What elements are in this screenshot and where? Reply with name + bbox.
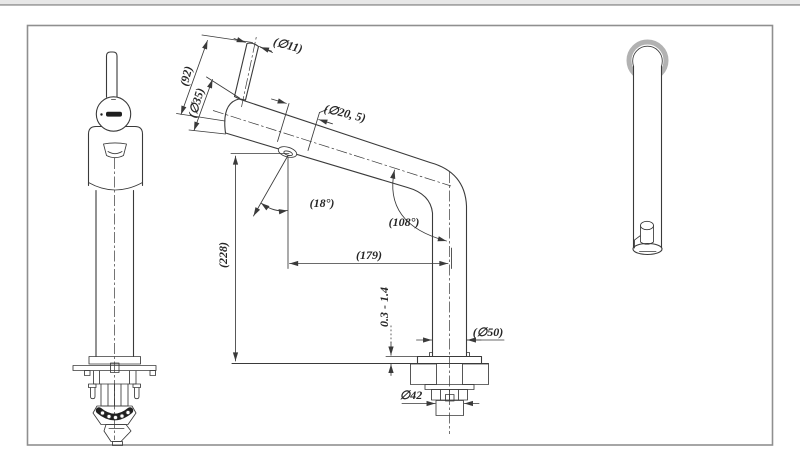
dim-18-arc [261, 203, 288, 211]
top-view-tube-fill [634, 61, 661, 249]
bracket-tab-left [85, 371, 91, 376]
front-hose-elbow [104, 425, 131, 442]
main-section-view [213, 36, 489, 434]
front-body-outline [89, 127, 143, 186]
dim-thread-diameter-label: ∅42 [400, 388, 422, 402]
front-body-bottom-arc [89, 183, 143, 191]
front-supply-body [101, 384, 128, 406]
top-view [629, 42, 666, 255]
counter-section-left [411, 364, 437, 385]
top-border-strip [0, 0, 800, 4]
dimension-annotations: (∅11) (92) (∅35) (∅20, 5) (18°) (108°) (… [177, 35, 505, 404]
dim-escutcheon-diameter-label: (∅50) [473, 325, 503, 339]
faucet-dimension-drawing: (∅11) (92) (∅35) (∅20, 5) (18°) (108°) (… [0, 0, 800, 451]
main-lever-rod [235, 43, 259, 100]
dim-deck-thickness-label: 0.3 - 1.4 [377, 287, 391, 327]
front-view [73, 52, 156, 446]
dim-bend-angle-label: (108°) [389, 215, 420, 229]
dim-spout-diameter-label: (∅20, 5) [323, 101, 368, 125]
front-outlet-recess [104, 143, 127, 158]
top-view-lever-cap [641, 221, 654, 229]
dim-205-arrow-right [319, 120, 333, 124]
main-centerlines [213, 36, 451, 434]
dim-height-label: (228) [216, 242, 230, 268]
dim-205-arrow-left [272, 99, 287, 103]
technical-drawing-page: (∅11) (92) (∅35) (∅20, 5) (18°) (108°) (… [0, 0, 800, 451]
knob-logo [106, 112, 122, 117]
dim-lever-leader [260, 47, 273, 53]
dim-lever-length-label: (92) [177, 65, 195, 88]
front-lever-rod [107, 52, 118, 97]
top-border-strip-edge [0, 4, 800, 6]
bracket-tab-right [150, 371, 156, 376]
knob-logo-dot [100, 113, 102, 115]
main-spout-outline [225, 99, 467, 357]
dim-reach-label: (179) [356, 248, 382, 262]
dim-18-axis-line [254, 156, 289, 217]
base-bolt-right [133, 384, 141, 399]
dim-lever-diameter-label: (∅11) [272, 35, 304, 56]
dim-outlet-angle-label: (18°) [310, 196, 335, 210]
top-view-spout-end [633, 244, 662, 255]
dim-205-ticks [278, 104, 320, 151]
dim-108-arc [393, 170, 447, 241]
counter-section-right [463, 364, 489, 385]
base-bolt-left [89, 384, 97, 399]
